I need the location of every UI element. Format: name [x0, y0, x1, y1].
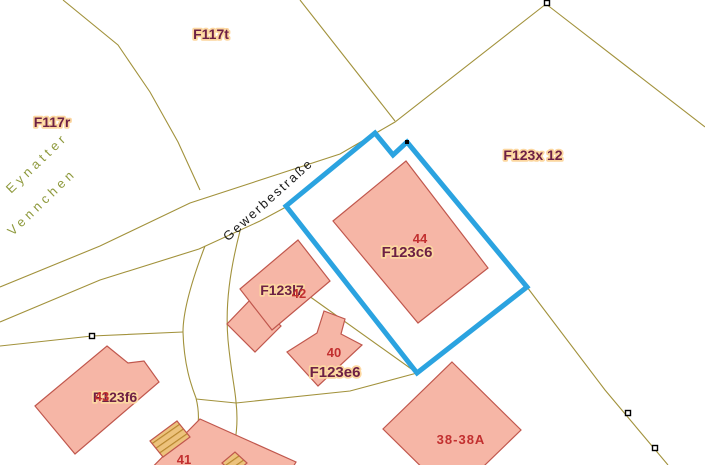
street-name-label: Gewerbestraße — [220, 155, 316, 243]
parcel-label-f117t: F117t — [193, 26, 229, 42]
survey-point-marker — [653, 446, 658, 451]
map-canvas[interactable]: F117t F117r F123x 12 F123c6 44 F123l7 42… — [0, 0, 705, 465]
survey-point-marker — [626, 411, 631, 416]
parcel-label-f117r: F117r — [34, 114, 71, 130]
parcel-label-f123x12: F123x 12 — [503, 147, 562, 163]
house-number-38-38a: 38-38A — [437, 432, 486, 447]
survey-point-marker — [545, 1, 550, 6]
path-edge-right — [227, 231, 240, 465]
building-38-38a[interactable] — [383, 362, 521, 465]
boundary-line-south-mid — [196, 373, 417, 403]
boundary-line-northeast — [546, 4, 705, 127]
cadastral-map[interactable]: F117t F117r F123x 12 F123c6 44 F123l7 42… — [0, 0, 705, 465]
house-number-44: 44 — [413, 231, 428, 246]
boundary-line-east — [527, 287, 668, 465]
house-number-43: 43 — [95, 389, 109, 404]
buildings — [35, 161, 521, 465]
boundary-line-west — [63, 0, 200, 190]
parcel-label-f123c6: F123c6 — [382, 244, 433, 261]
house-number-40: 40 — [327, 345, 341, 360]
boundary-line-north-center — [300, 0, 395, 121]
building-41[interactable] — [120, 419, 296, 465]
house-number-41: 41 — [177, 452, 191, 465]
parcel-label-f123e6: F123e6 — [310, 364, 361, 381]
survey-point-marker — [90, 334, 95, 339]
survey-point-marker — [405, 140, 409, 144]
house-number-42: 42 — [292, 286, 306, 301]
